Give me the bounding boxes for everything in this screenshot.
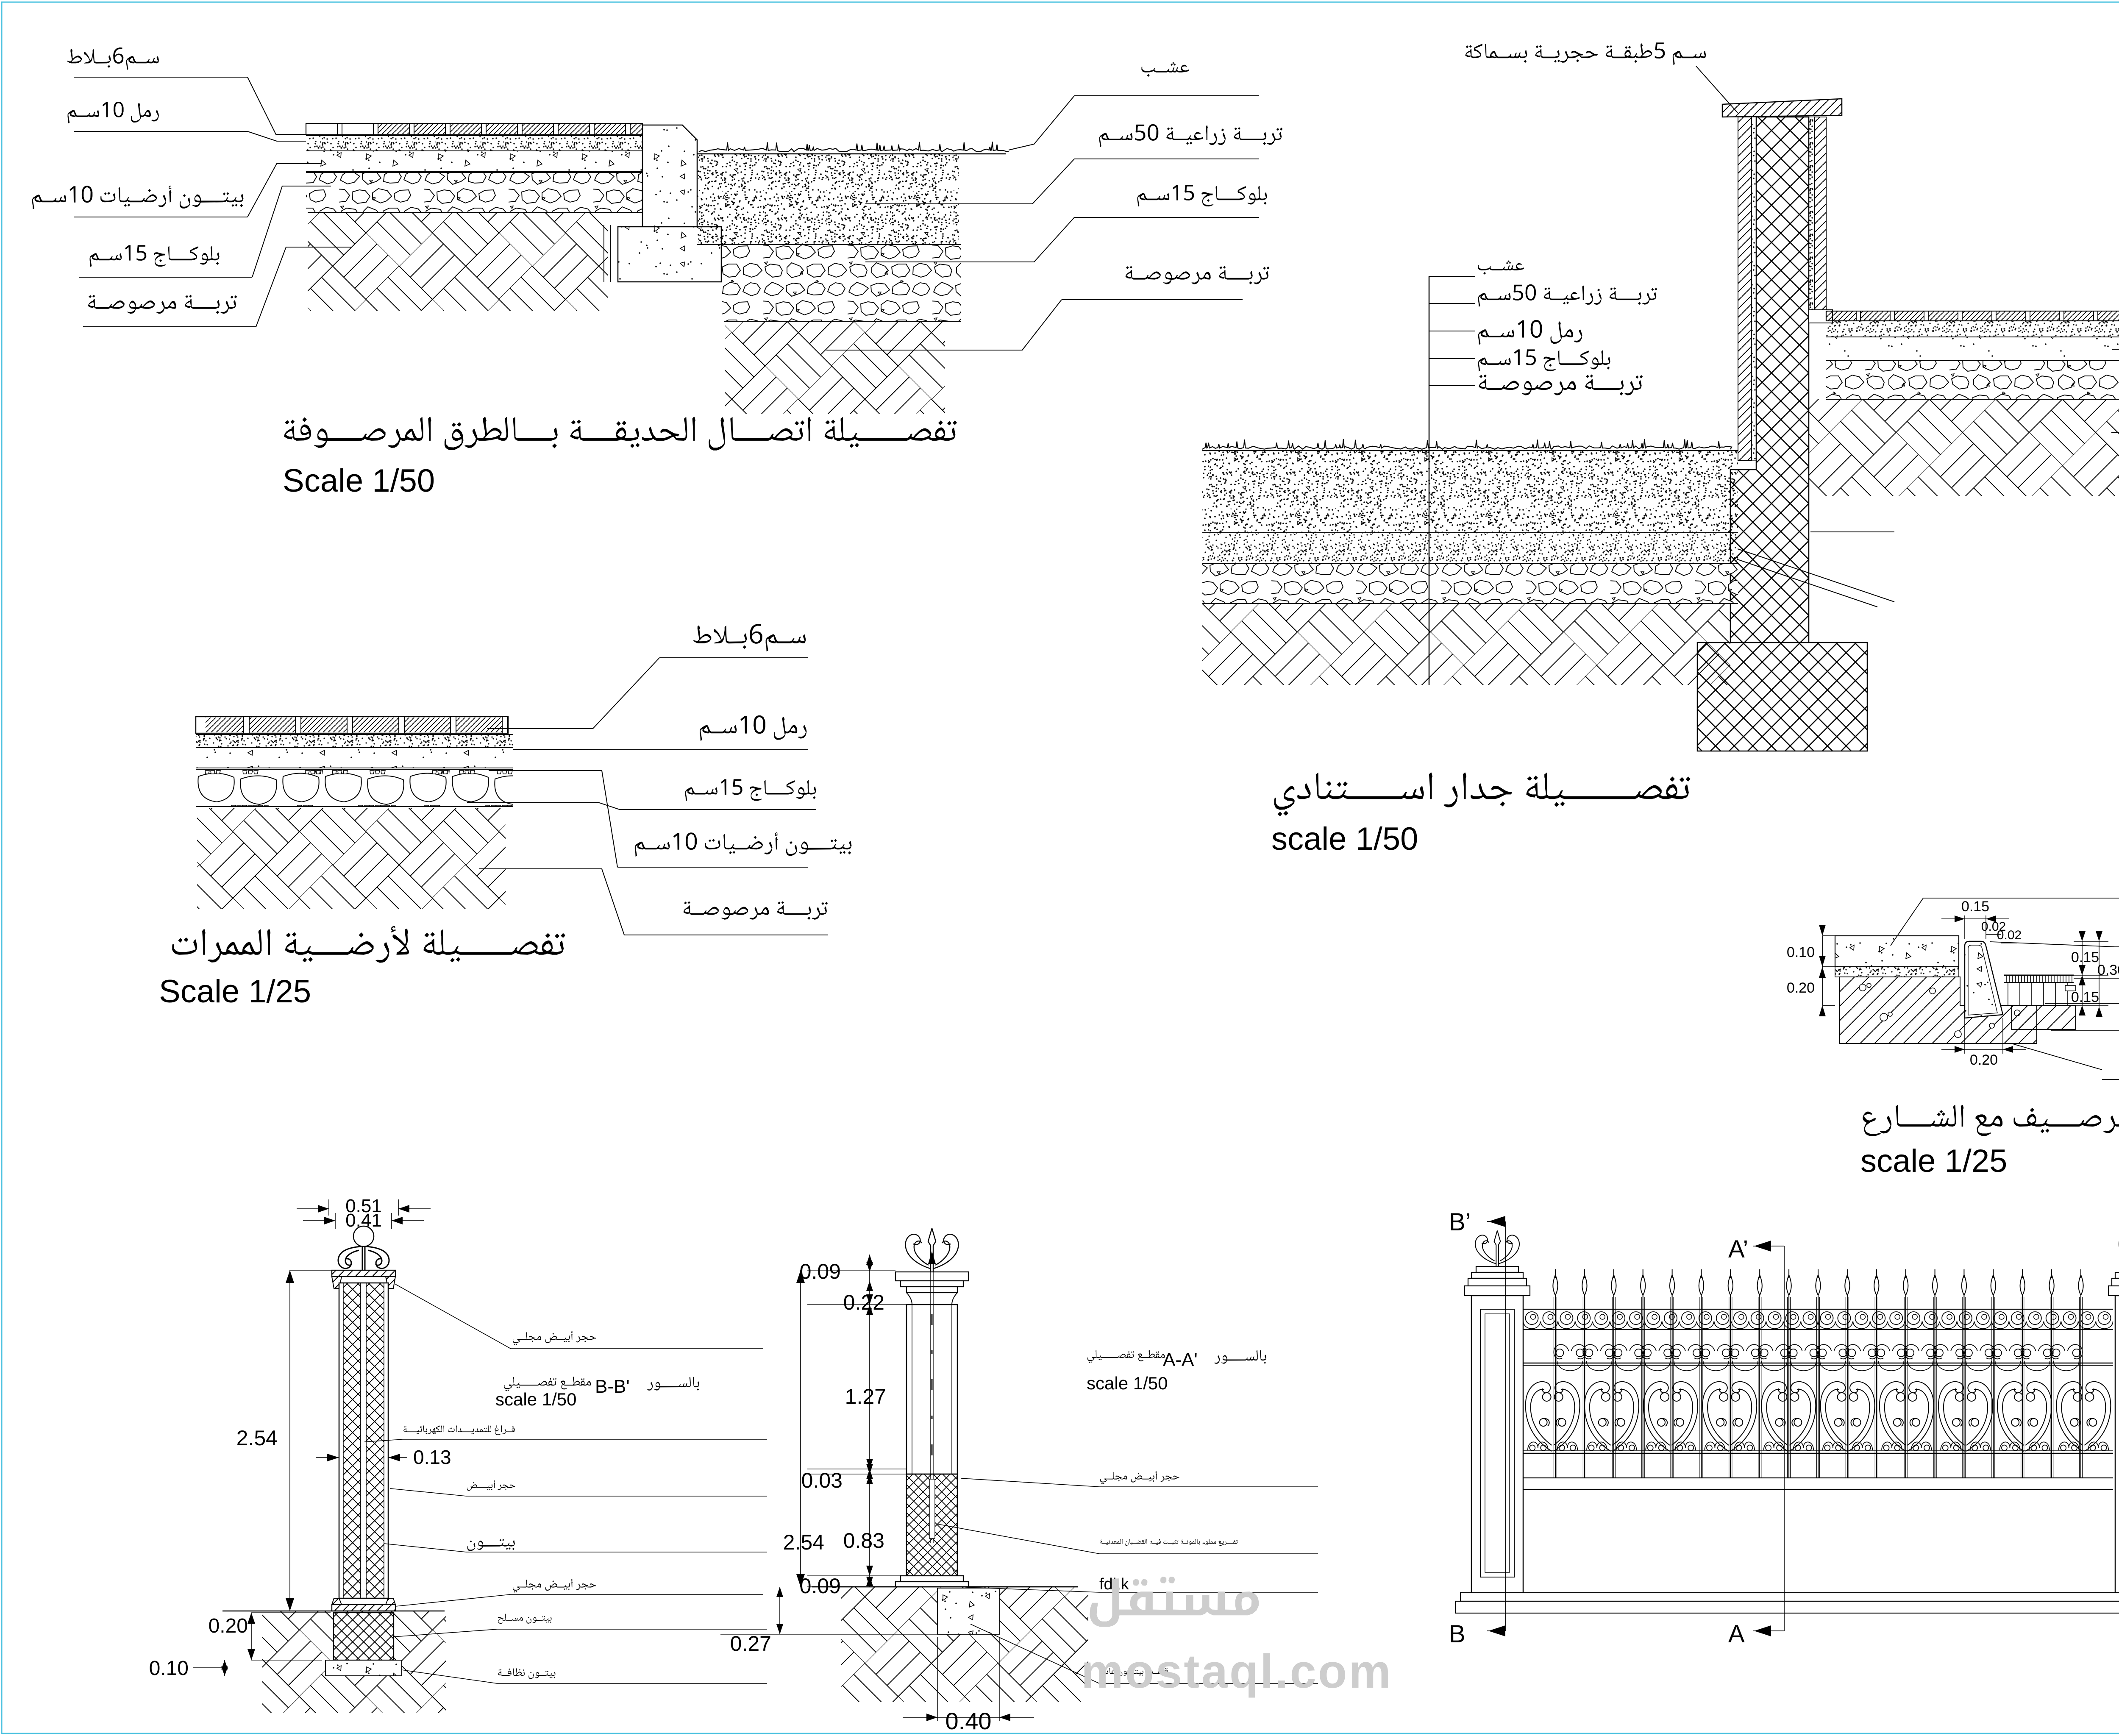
svg-text:0.20: 0.20 [1970, 1052, 1998, 1068]
svg-text:0.20: 0.20 [1787, 980, 1815, 996]
svg-text:B-B': B-B' [595, 1376, 630, 1397]
svg-text:0.83: 0.83 [843, 1529, 884, 1552]
svg-text:0.10: 0.10 [149, 1657, 189, 1680]
svg-text:2.54: 2.54 [236, 1426, 278, 1450]
svg-text:scale 1/25: scale 1/25 [1860, 1143, 2007, 1179]
svg-text:1.27: 1.27 [845, 1385, 886, 1408]
svg-text:0.09: 0.09 [800, 1574, 841, 1598]
svg-text:scale 1/50: scale 1/50 [1087, 1373, 1168, 1393]
svg-text:0.30: 0.30 [2097, 962, 2119, 978]
svg-text:0.09: 0.09 [800, 1260, 841, 1283]
svg-text:0.41: 0.41 [345, 1210, 382, 1231]
svg-text:mostaql.com: mostaql.com [1081, 1645, 1393, 1698]
svg-text:0.27: 0.27 [730, 1632, 771, 1655]
svg-text:0.15: 0.15 [2071, 949, 2099, 965]
svg-text:scale 1/50: scale 1/50 [495, 1389, 576, 1409]
svg-text:0.13: 0.13 [413, 1446, 451, 1468]
svg-text:2.54: 2.54 [783, 1530, 824, 1554]
svg-text:0.10: 0.10 [1787, 944, 1815, 960]
svg-text:A’: A’ [1728, 1235, 1748, 1263]
svg-text:Scale 1/50: Scale 1/50 [283, 463, 435, 499]
svg-text:0.22: 0.22 [843, 1291, 884, 1314]
svg-text:0.02: 0.02 [1997, 928, 2022, 942]
svg-text:B’: B’ [1449, 1208, 1471, 1236]
svg-text:0.15: 0.15 [2071, 989, 2099, 1005]
svg-text:Scale 1/25: Scale 1/25 [159, 974, 311, 1010]
svg-text:0.40: 0.40 [945, 1708, 992, 1734]
svg-text:A-A': A-A' [1163, 1349, 1198, 1370]
svg-text:0.15: 0.15 [1961, 899, 1989, 915]
svg-text:0.20: 0.20 [209, 1615, 248, 1637]
svg-text:B: B [1449, 1620, 1466, 1648]
svg-text:A: A [1728, 1620, 1745, 1648]
svg-text:0.03: 0.03 [801, 1469, 843, 1492]
svg-text:scale 1/50: scale 1/50 [1271, 821, 1418, 857]
